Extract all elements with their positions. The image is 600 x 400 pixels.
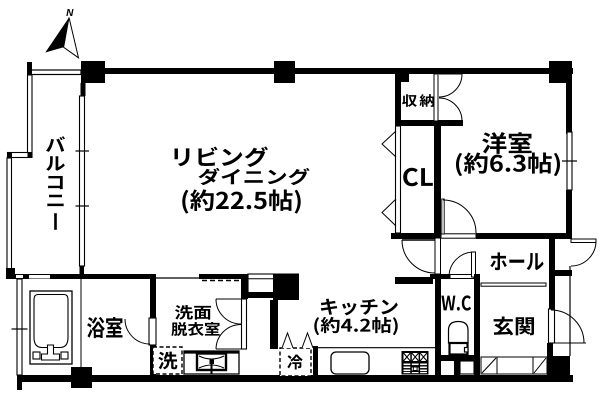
svg-text:N: N [66, 8, 74, 19]
